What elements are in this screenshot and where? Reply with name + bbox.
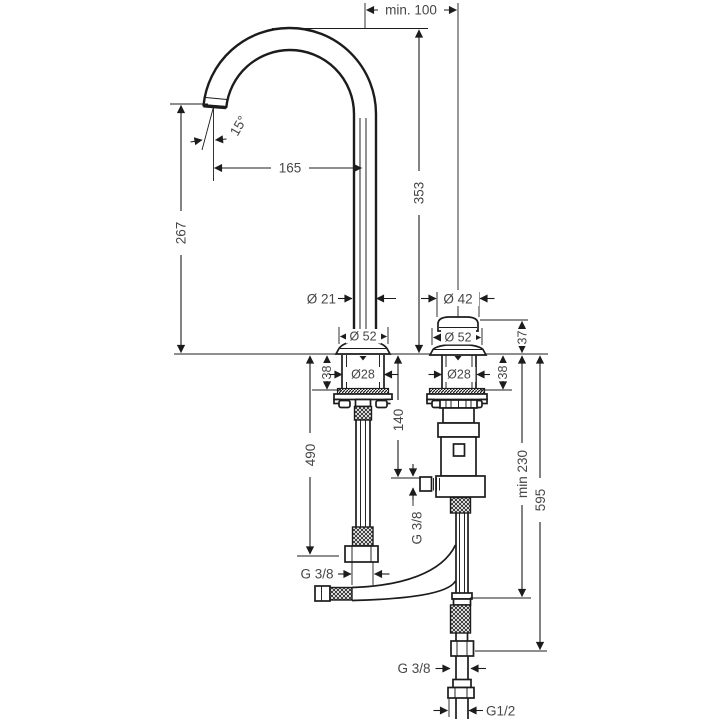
spout-outlet-face	[204, 106, 227, 108]
valve-supply-hose	[448, 498, 474, 720]
min-hole-distance-label: min. 100	[385, 3, 437, 18]
spout-tube-diameter-label: Ø 21	[307, 292, 336, 307]
spout-reach-label: 165	[279, 161, 302, 176]
gooseneck-spout-outline	[204, 28, 377, 343]
dim-supply-hose-thread: G 3/8	[397, 661, 486, 676]
spout-hose-thread-label: G 3/8	[300, 567, 333, 582]
dim-min-hole-distance: min. 100	[365, 2, 458, 317]
dim-spout-angle: 15°	[191, 107, 251, 181]
dim-spout-base-diameter: Ø 52	[339, 327, 388, 344]
supply-connection-thread-label: G1/2	[486, 704, 515, 719]
cap-dome	[438, 317, 478, 331]
supply-adapter-nut	[448, 688, 474, 699]
valve-base-flange	[430, 345, 486, 355]
valve-side-outlet	[420, 477, 432, 491]
spout-angle-label: 15°	[227, 113, 250, 138]
spout-aerator-line	[206, 98, 228, 100]
cap-base-diameter-label: Ø 52	[444, 331, 471, 345]
spout-base-diameter-label: Ø 52	[349, 330, 376, 344]
spout-outlet-height-label: 267	[174, 222, 189, 245]
dim-valve-shank-diameter: Ø28	[429, 367, 491, 382]
faucet-installation-diagram: min. 100 15° 165 267 353 Ø 21	[0, 0, 720, 720]
cap-height-label: 37	[516, 331, 530, 345]
valve-outlet-thread-label: G 3/8	[410, 511, 425, 544]
shank-notch	[455, 356, 462, 361]
dimension-annotations: min. 100 15° 165 267 353 Ø 21	[170, 2, 548, 719]
spout-supply-hose	[345, 407, 378, 586]
dim-spout-shank-diameter: Ø28	[329, 367, 398, 382]
dim-valve-shank-depth: 38	[480, 356, 512, 390]
valve-body	[420, 400, 485, 497]
dim-spout-hose-length: 490	[297, 356, 339, 556]
dim-spout-hose-thread: G 3/8	[300, 567, 389, 582]
technical-drawing-page: min. 100 15° 165 267 353 Ø 21	[0, 0, 720, 720]
valve-outlet-depth-label: 140	[391, 409, 406, 432]
shank-notch	[360, 356, 367, 361]
supply-adapter-lip	[453, 680, 471, 688]
supply-hose-length-label: 595	[533, 489, 548, 512]
min-clearance-label: min 230	[515, 450, 530, 498]
supply-hose-thread-label: G 3/8	[397, 661, 430, 676]
valve-shank-diameter-label: Ø28	[447, 368, 471, 382]
dim-spout-outlet-height: 267	[170, 104, 208, 353]
dim-valve-outlet-thread: G 3/8	[410, 464, 425, 545]
spout-total-height-label: 353	[412, 182, 427, 205]
cap-diameter-label: Ø 42	[443, 292, 472, 307]
spout-assembly	[204, 28, 393, 585]
dim-spout-shank-depth: 38	[312, 356, 341, 390]
dim-supply-connection-thread: G1/2	[434, 699, 516, 719]
valve-outlet-hose	[315, 545, 456, 601]
supply-hose-nut	[451, 641, 474, 656]
dim-cap-height: 37	[480, 320, 530, 353]
dim-spout-total-height: 353	[272, 29, 428, 353]
spout-mounting-flange	[334, 389, 392, 408]
spout-hose-length-label: 490	[303, 444, 318, 467]
dim-spout-tube-diameter: Ø 21	[307, 292, 396, 307]
dim-spout-reach: 165	[215, 160, 362, 176]
valve-shank-depth-label: 38	[496, 366, 510, 380]
spout-shank-diameter-label: Ø28	[351, 368, 375, 382]
spout-hose-nut	[345, 546, 378, 562]
spout-shank-depth-label: 38	[320, 366, 334, 380]
